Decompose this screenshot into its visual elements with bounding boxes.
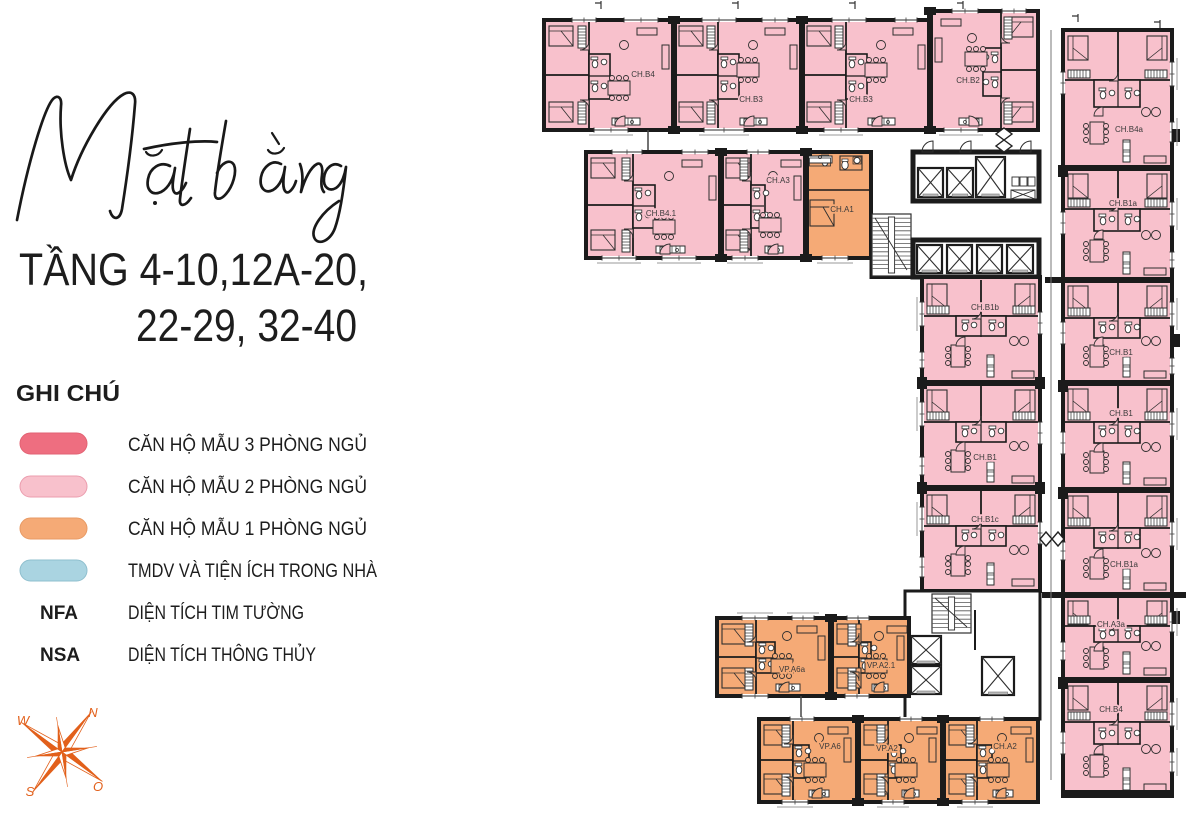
svg-text:DIỆN TÍCH THÔNG THỦY: DIỆN TÍCH THÔNG THỦY (128, 644, 316, 666)
svg-text:TMDV VÀ TIỆN ÍCH TRONG NHÀ: TMDV VÀ TIỆN ÍCH TRONG NHÀ (128, 560, 377, 582)
svg-text:CH.A2: CH.A2 (993, 742, 1017, 751)
svg-text:NSA: NSA (40, 645, 80, 666)
svg-text:DIỆN TÍCH TIM TƯỜNG: DIỆN TÍCH TIM TƯỜNG (128, 602, 304, 624)
svg-text:CH.B4a: CH.B4a (1115, 125, 1144, 134)
svg-text:GHI CHÚ: GHI CHÚ (16, 379, 120, 406)
svg-text:CH.B4: CH.B4 (631, 70, 655, 79)
svg-text:O: O (93, 779, 103, 794)
svg-text:CH.B1: CH.B1 (973, 453, 997, 462)
svg-text:CH.A1: CH.A1 (830, 205, 854, 214)
svg-text:CĂN HỘ MẪU 3 PHÒNG NGỦ: CĂN HỘ MẪU 3 PHÒNG NGỦ (128, 434, 367, 456)
svg-text:22-29, 32-40: 22-29, 32-40 (136, 300, 357, 351)
svg-text:CH.B4: CH.B4 (1099, 705, 1123, 714)
svg-text:CH.B1c: CH.B1c (971, 515, 999, 524)
svg-text:CH.B3: CH.B3 (739, 95, 763, 104)
svg-text:CH.B1a: CH.B1a (1109, 199, 1138, 208)
svg-text:CH.B4.1: CH.B4.1 (646, 209, 677, 218)
svg-text:VP.A6a: VP.A6a (779, 665, 806, 674)
svg-text:CH.A3a: CH.A3a (1097, 620, 1126, 629)
svg-text:CH.B1: CH.B1 (1109, 409, 1133, 418)
svg-text:VP.A6: VP.A6 (819, 742, 841, 751)
svg-text:CH.A3: CH.A3 (766, 176, 790, 185)
svg-text:W: W (17, 713, 31, 728)
svg-text:CH.B1b: CH.B1b (971, 303, 1000, 312)
svg-text:CH.B1: CH.B1 (1109, 348, 1133, 357)
svg-text:VP.A2.1: VP.A2.1 (867, 661, 896, 670)
svg-text:N: N (88, 705, 98, 720)
svg-text:CĂN HỘ MẪU 1 PHÒNG NGỦ: CĂN HỘ MẪU 1 PHÒNG NGỦ (128, 518, 367, 540)
svg-text:S: S (26, 784, 35, 799)
svg-text:CH.B2: CH.B2 (956, 76, 980, 85)
svg-text:CH.B1a: CH.B1a (1110, 560, 1139, 569)
svg-text:CĂN HỘ MẪU 2 PHÒNG NGỦ: CĂN HỘ MẪU 2 PHÒNG NGỦ (128, 476, 367, 498)
svg-text:CH.B3: CH.B3 (849, 95, 873, 104)
svg-text:TẦNG 4-10,12A-20,: TẦNG 4-10,12A-20, (19, 244, 368, 295)
svg-text:VP.A2: VP.A2 (876, 744, 898, 753)
svg-text:NFA: NFA (40, 603, 78, 624)
